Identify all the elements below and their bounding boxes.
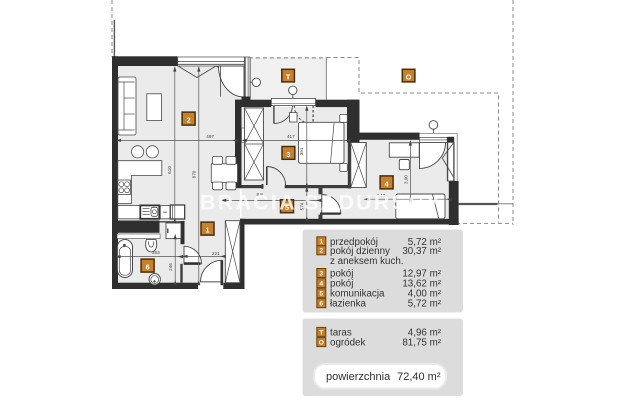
svg-text:2: 2 bbox=[187, 116, 191, 125]
svg-text:3: 3 bbox=[319, 270, 323, 277]
svg-text:O: O bbox=[406, 72, 412, 81]
svg-text:O: O bbox=[319, 340, 324, 347]
svg-text:6: 6 bbox=[146, 263, 150, 272]
svg-text:72,40 m²: 72,40 m² bbox=[397, 371, 441, 383]
svg-text:2: 2 bbox=[319, 248, 323, 255]
svg-text:870: 870 bbox=[192, 170, 197, 178]
svg-text:610: 610 bbox=[167, 166, 172, 174]
svg-text:łazienka: łazienka bbox=[330, 299, 366, 310]
svg-text:z aneksem kuch.: z aneksem kuch. bbox=[330, 256, 404, 267]
svg-text:1: 1 bbox=[206, 226, 210, 235]
svg-text:1: 1 bbox=[319, 239, 323, 246]
svg-text:30,37 m²: 30,37 m² bbox=[402, 246, 441, 257]
svg-text:497: 497 bbox=[206, 134, 214, 139]
svg-text:3: 3 bbox=[286, 150, 290, 159]
svg-text:6: 6 bbox=[319, 301, 323, 308]
svg-text:4: 4 bbox=[319, 281, 323, 288]
svg-text:417: 417 bbox=[287, 134, 295, 139]
svg-text:ogródek: ogródek bbox=[330, 338, 366, 349]
svg-text:powierzchnia: powierzchnia bbox=[326, 371, 391, 383]
svg-text:81,75 m²: 81,75 m² bbox=[402, 338, 441, 349]
svg-text:BRACIA SADURSCY: BRACIA SADURSCY bbox=[200, 191, 442, 215]
svg-text:246: 246 bbox=[168, 263, 173, 271]
svg-text:351: 351 bbox=[299, 147, 304, 155]
svg-text:5: 5 bbox=[319, 291, 323, 298]
svg-text:4: 4 bbox=[385, 179, 389, 188]
svg-text:5,72 m²: 5,72 m² bbox=[408, 299, 442, 310]
svg-text:221: 221 bbox=[212, 251, 220, 256]
svg-text:3,90: 3,90 bbox=[404, 175, 409, 184]
svg-text:T: T bbox=[286, 72, 291, 81]
svg-text:263: 263 bbox=[152, 250, 160, 255]
